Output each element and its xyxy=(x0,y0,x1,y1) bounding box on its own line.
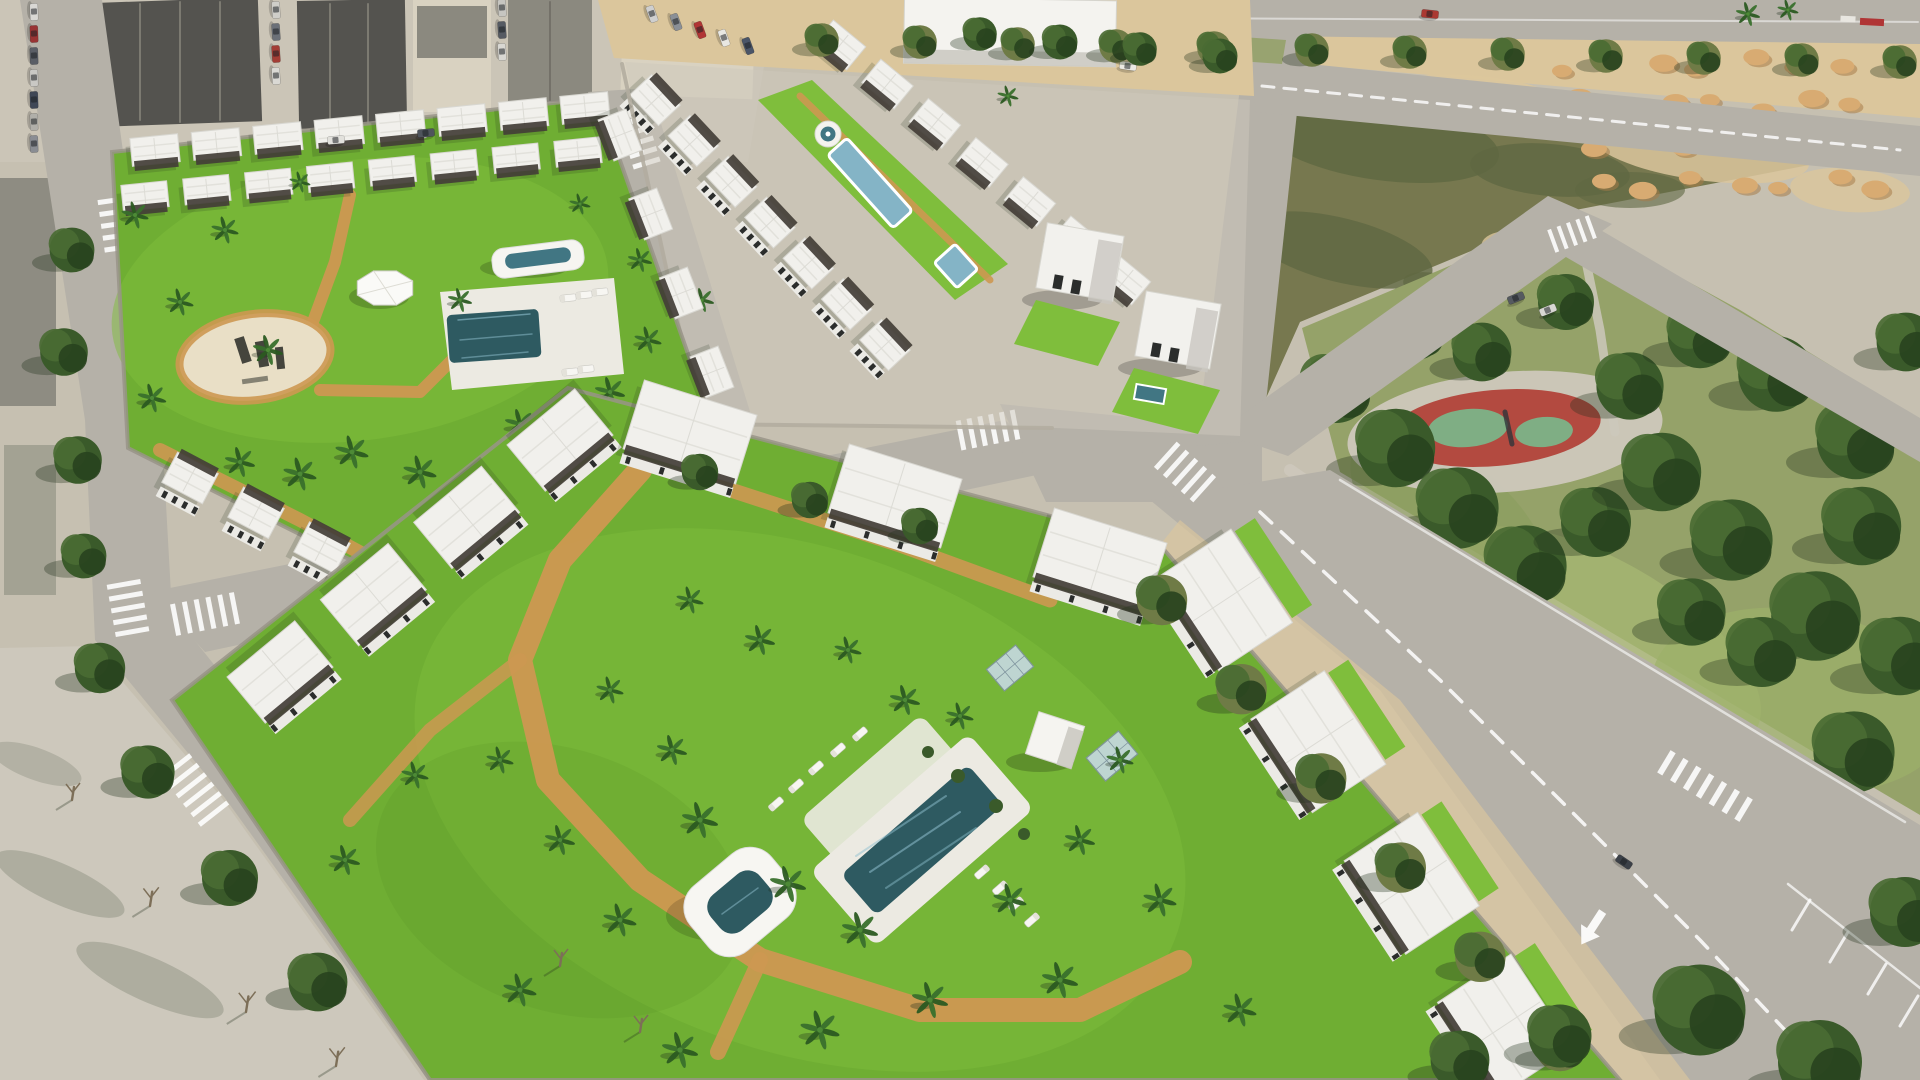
scene-canvas xyxy=(0,0,1920,1080)
aerial-development-render xyxy=(0,0,1920,1080)
